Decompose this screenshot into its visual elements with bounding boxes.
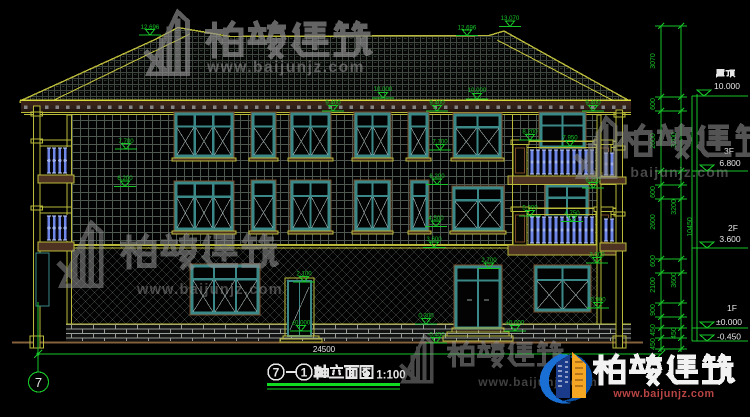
svg-text:±0.000: ±0.000 [716, 317, 742, 327]
svg-text:3600: 3600 [671, 272, 678, 288]
svg-text:24500: 24500 [313, 345, 336, 354]
svg-text:3070: 3070 [650, 53, 657, 69]
svg-text:3200: 3200 [671, 199, 678, 215]
svg-text:450: 450 [671, 327, 678, 339]
svg-text:7: 7 [35, 375, 42, 390]
svg-text:2100: 2100 [650, 277, 657, 293]
svg-text:www.baijunjz.com: www.baijunjz.com [612, 388, 714, 400]
svg-text:www.baijunjz.com: www.baijunjz.com [136, 282, 283, 298]
svg-text:2F: 2F [728, 223, 738, 233]
svg-text:600: 600 [650, 98, 657, 110]
svg-text:10.000: 10.000 [468, 87, 487, 94]
svg-text:1F: 1F [727, 303, 737, 313]
svg-text:7: 7 [273, 366, 280, 380]
svg-text:10.000: 10.000 [714, 81, 740, 91]
svg-text:600: 600 [650, 186, 657, 198]
svg-text:baijunjz.com: baijunjz.com [630, 164, 729, 180]
svg-text:3.600: 3.600 [719, 234, 741, 244]
svg-text:2600: 2600 [650, 214, 657, 230]
svg-text:10450: 10450 [687, 217, 694, 237]
svg-text:1:100: 1:100 [376, 370, 405, 382]
svg-text:1: 1 [301, 366, 308, 380]
svg-text:-0.450: -0.450 [717, 332, 741, 342]
svg-text:450: 450 [650, 324, 657, 336]
svg-text:900: 900 [650, 304, 657, 316]
svg-text:450: 450 [650, 338, 657, 350]
svg-text:10.000: 10.000 [374, 86, 393, 93]
svg-text:600: 600 [650, 255, 657, 267]
svg-text:www.baijunjz.com: www.baijunjz.com [206, 59, 365, 76]
